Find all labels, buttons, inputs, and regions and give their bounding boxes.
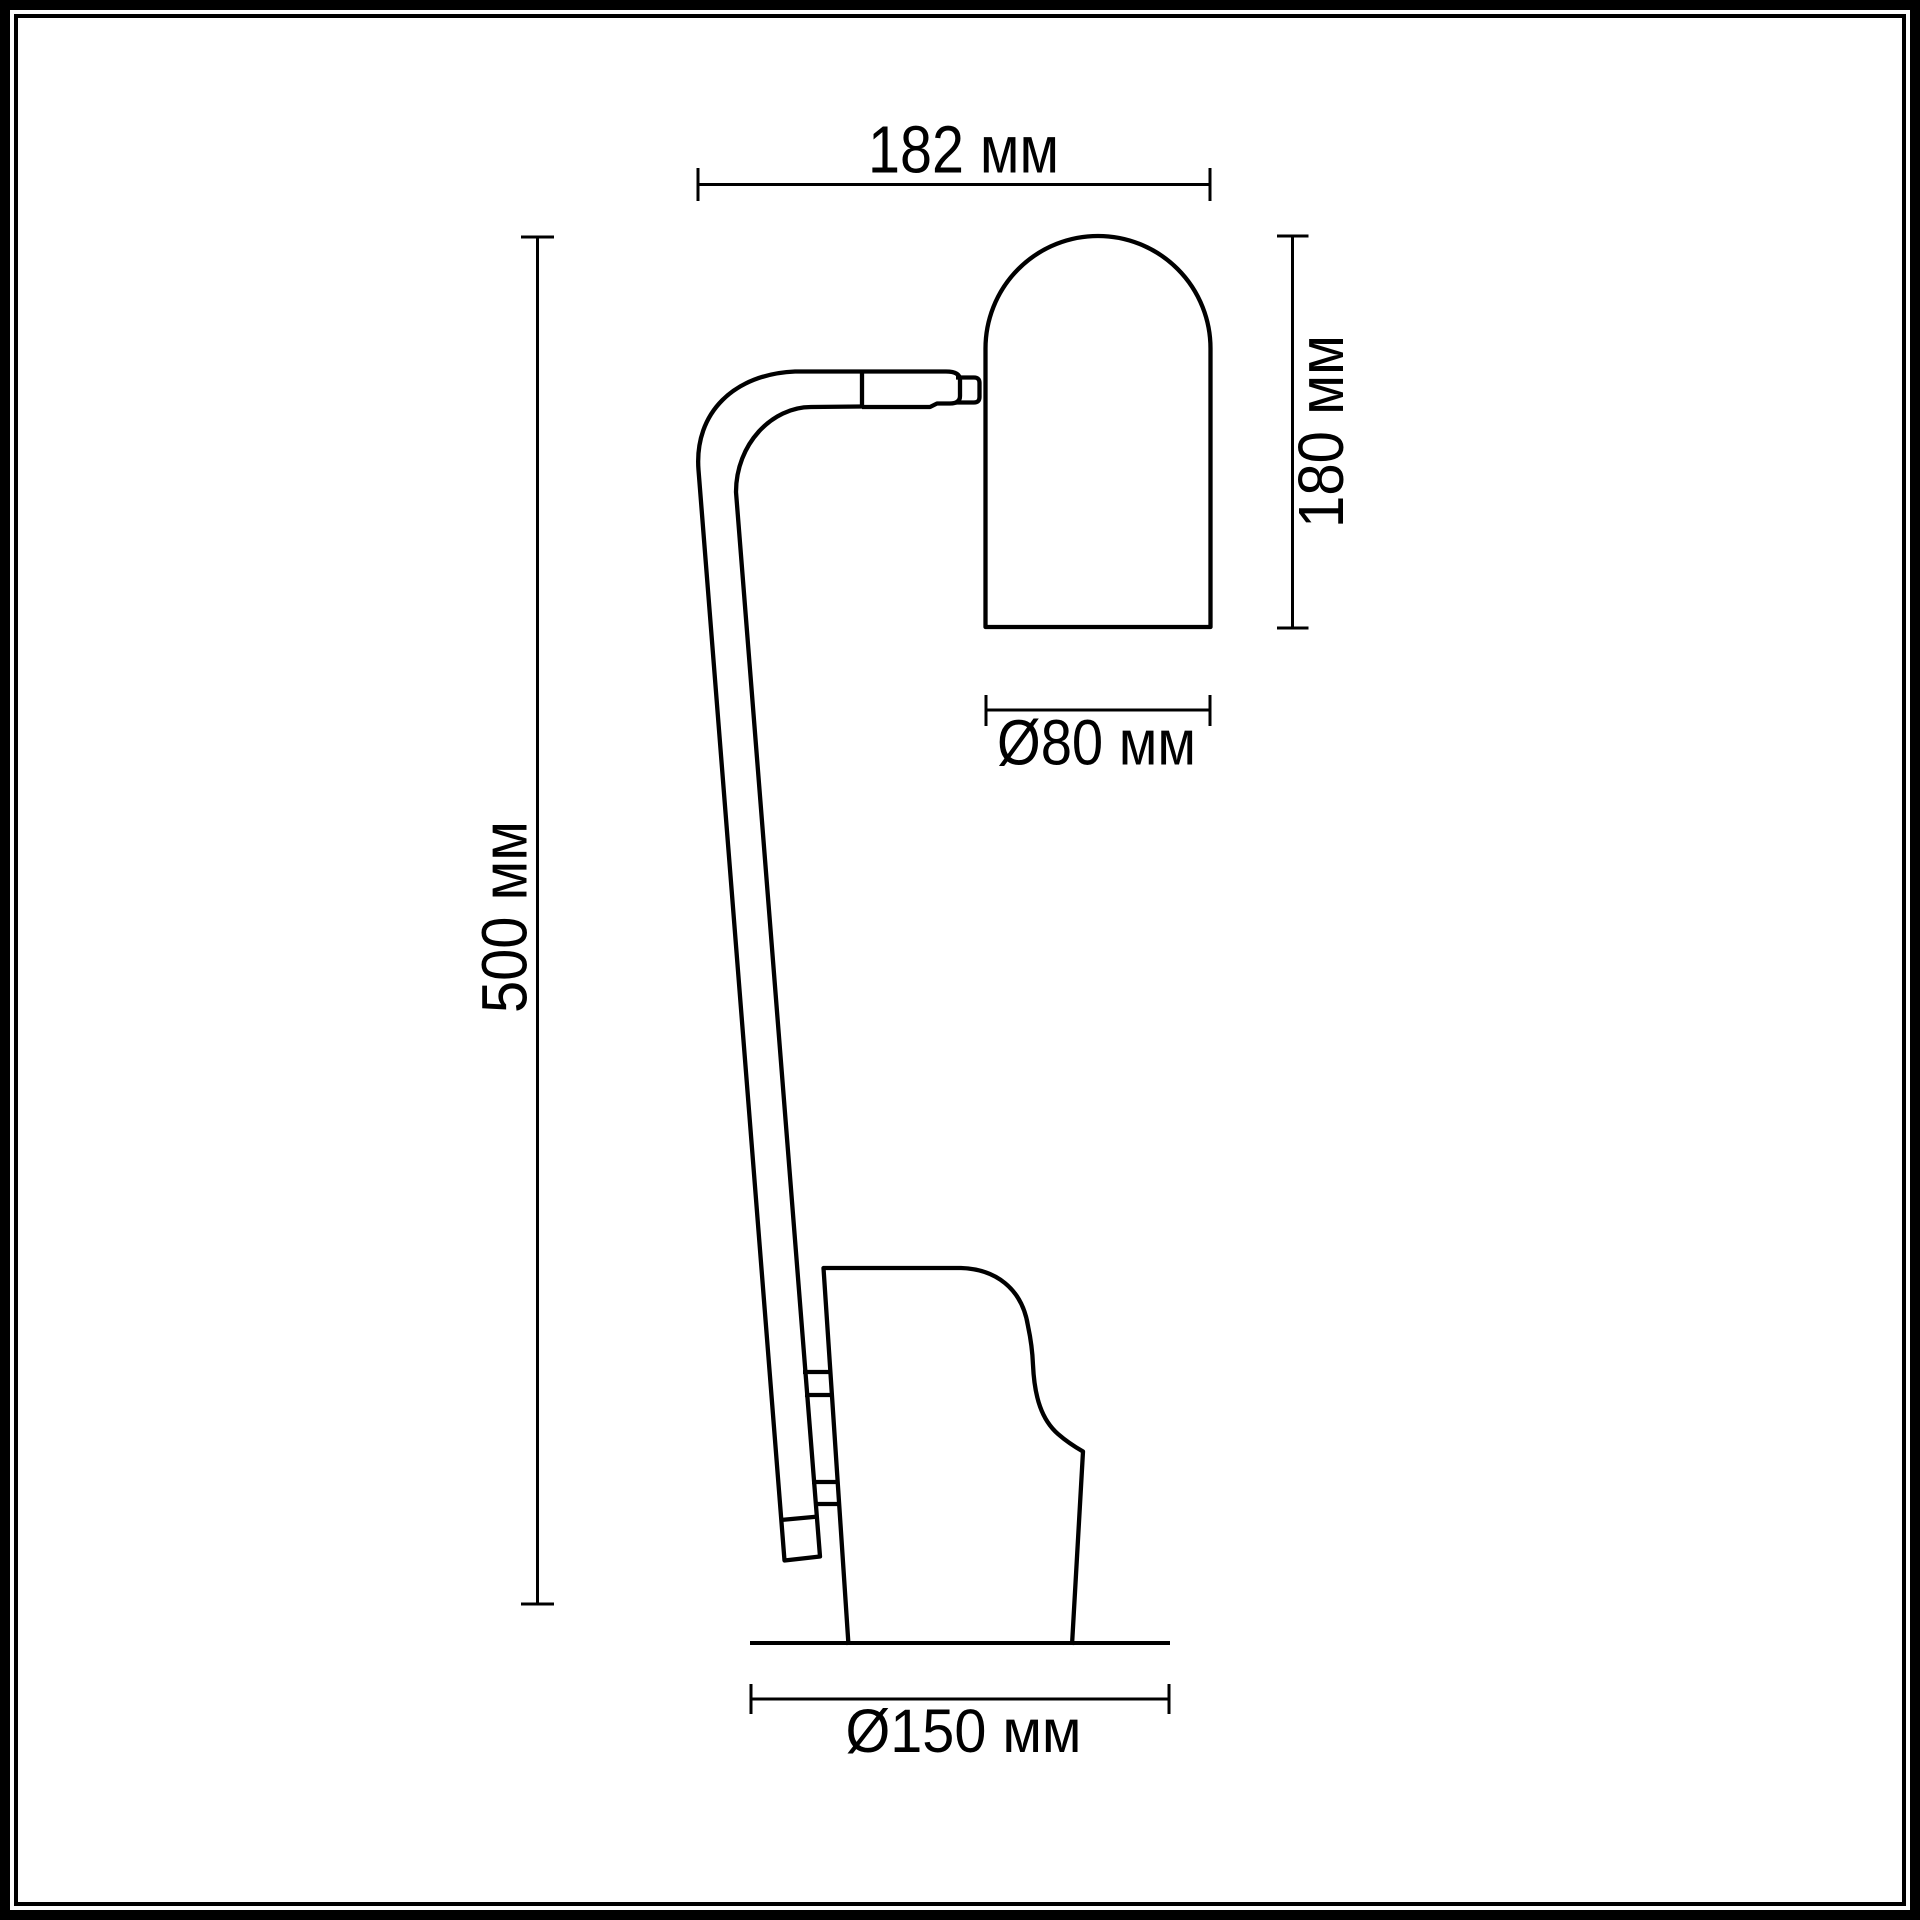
- svg-text:500 мм: 500 мм: [469, 821, 541, 1013]
- svg-text:182 мм: 182 мм: [868, 113, 1059, 188]
- svg-text:Ø150 мм: Ø150 мм: [846, 1697, 1082, 1765]
- svg-text:180 мм: 180 мм: [1285, 335, 1357, 528]
- svg-text:Ø80 мм: Ø80 мм: [997, 707, 1196, 779]
